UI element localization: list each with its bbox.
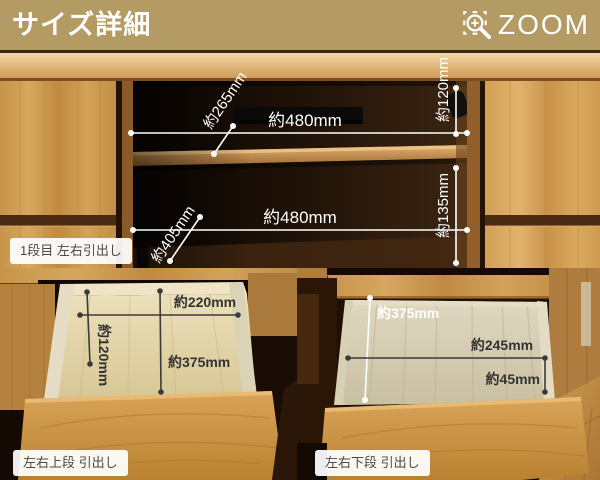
magnifier-zoom-icon xyxy=(462,10,493,41)
measure-dot xyxy=(230,123,236,129)
measure-dot xyxy=(211,151,217,157)
measure-dot xyxy=(157,288,163,294)
dim-label-drawer-upper-width: 約220mm xyxy=(174,294,236,310)
measure-dot xyxy=(128,130,134,136)
measure-dot xyxy=(453,260,459,266)
photo-upper-drawer: 約220mm 約120mm 約375mm xyxy=(0,268,297,480)
caption-upper-drawer: 左右上段 引出し xyxy=(13,450,128,476)
zoom-button[interactable]: ZOOM xyxy=(462,10,590,41)
measure-dot xyxy=(87,361,93,367)
zoom-button-label: ZOOM xyxy=(498,11,590,39)
caption-row1-drawers: 1段目 左右引出し xyxy=(10,238,132,264)
dim-label-upper-width: 約480mm xyxy=(268,111,342,130)
measure-dot xyxy=(542,389,548,395)
drawer-illustration xyxy=(0,268,297,480)
cabinet-illustration xyxy=(0,50,600,268)
measure-dot xyxy=(167,258,173,264)
measure-dot xyxy=(235,312,241,318)
photo-lower-drawer: 約375mm 約245mm 約45mm xyxy=(297,268,600,480)
dim-label-drawer-lower-height: 約45mm xyxy=(486,371,540,387)
header-bar: サイズ詳細 ZOOM xyxy=(0,0,600,50)
dim-label-lower-height: 約135mm xyxy=(435,173,452,238)
measure-dot xyxy=(84,289,90,295)
drawer-illustration xyxy=(297,268,600,480)
measure-dot xyxy=(197,214,203,220)
dim-label-drawer-upper-height: 約120mm xyxy=(96,324,112,386)
dim-label-upper-height: 約120mm xyxy=(435,57,452,122)
measure-dot xyxy=(345,355,351,361)
measure-dot xyxy=(453,165,459,171)
dim-label-lower-width: 約480mm xyxy=(263,208,337,227)
measure-dot xyxy=(130,227,136,233)
measure-dot xyxy=(464,227,470,233)
size-detail-panel: サイズ詳細 ZOOM xyxy=(0,0,600,480)
dim-label-drawer-upper-depth: 約375mm xyxy=(168,354,230,370)
measure-dot xyxy=(158,389,164,395)
measure-dot xyxy=(367,295,373,301)
photo-open-shelf: 約480mm 約265mm 約120mm 約480mm 約405mm xyxy=(0,50,600,268)
dim-label-drawer-lower-depth: 約375mm xyxy=(377,305,439,321)
page-title: サイズ詳細 xyxy=(12,12,151,39)
measure-dot xyxy=(464,130,470,136)
measure-dot xyxy=(362,397,368,403)
measure-dot xyxy=(453,85,459,91)
measure-line xyxy=(160,291,161,392)
caption-lower-drawer: 左右下段 引出し xyxy=(315,450,430,476)
measure-dot xyxy=(453,131,459,137)
dim-label-drawer-lower-width: 約245mm xyxy=(471,337,533,353)
measure-dot xyxy=(77,312,83,318)
